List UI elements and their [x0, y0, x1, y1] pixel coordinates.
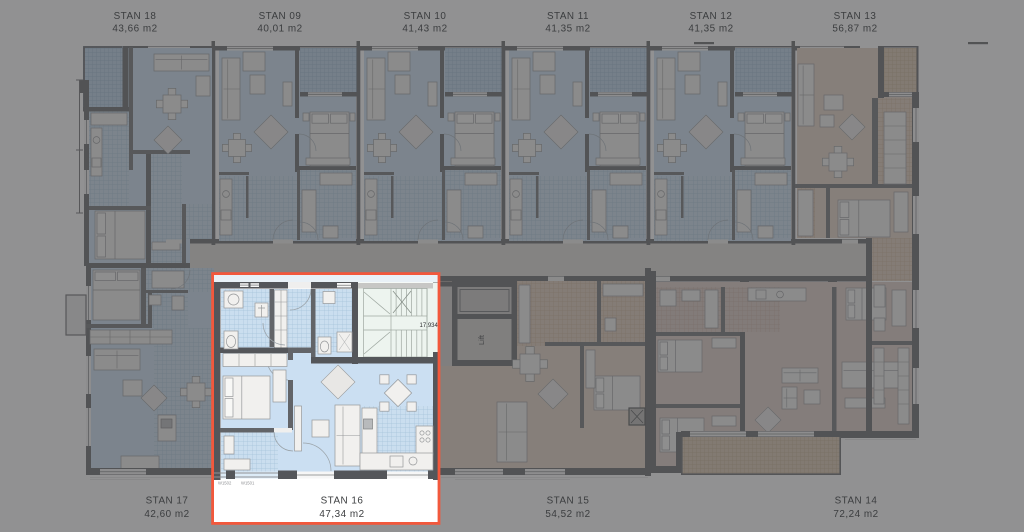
svg-text:STAN 17: STAN 17	[146, 496, 189, 507]
svg-text:STAN 13: STAN 13	[834, 11, 877, 22]
svg-text:STAN 09: STAN 09	[259, 11, 302, 22]
svg-text:41,35 m2: 41,35 m2	[688, 24, 733, 35]
svg-text:STAN 15: STAN 15	[547, 496, 590, 507]
svg-text:STAN 14: STAN 14	[835, 496, 878, 507]
svg-text:54,52 m2: 54,52 m2	[545, 509, 590, 520]
svg-text:41,43 m2: 41,43 m2	[402, 24, 447, 35]
svg-text:STAN 12: STAN 12	[690, 11, 733, 22]
svg-text:41,35 m2: 41,35 m2	[545, 24, 590, 35]
svg-text:43,66 m2: 43,66 m2	[112, 24, 157, 35]
svg-text:STAN 11: STAN 11	[547, 11, 589, 22]
svg-text:42,60 m2: 42,60 m2	[144, 509, 189, 520]
svg-text:W1501: W1501	[241, 481, 255, 486]
svg-text:STAN 18: STAN 18	[114, 11, 157, 22]
svg-text:72,24 m2: 72,24 m2	[833, 509, 878, 520]
svg-text:W1502: W1502	[218, 481, 232, 486]
svg-text:56,87 m2: 56,87 m2	[832, 24, 877, 35]
svg-text:STAN 10: STAN 10	[404, 11, 447, 22]
svg-text:40,01 m2: 40,01 m2	[257, 24, 302, 35]
svg-text:47,34 m2: 47,34 m2	[319, 509, 364, 520]
svg-text:STAN 16: STAN 16	[321, 496, 364, 507]
